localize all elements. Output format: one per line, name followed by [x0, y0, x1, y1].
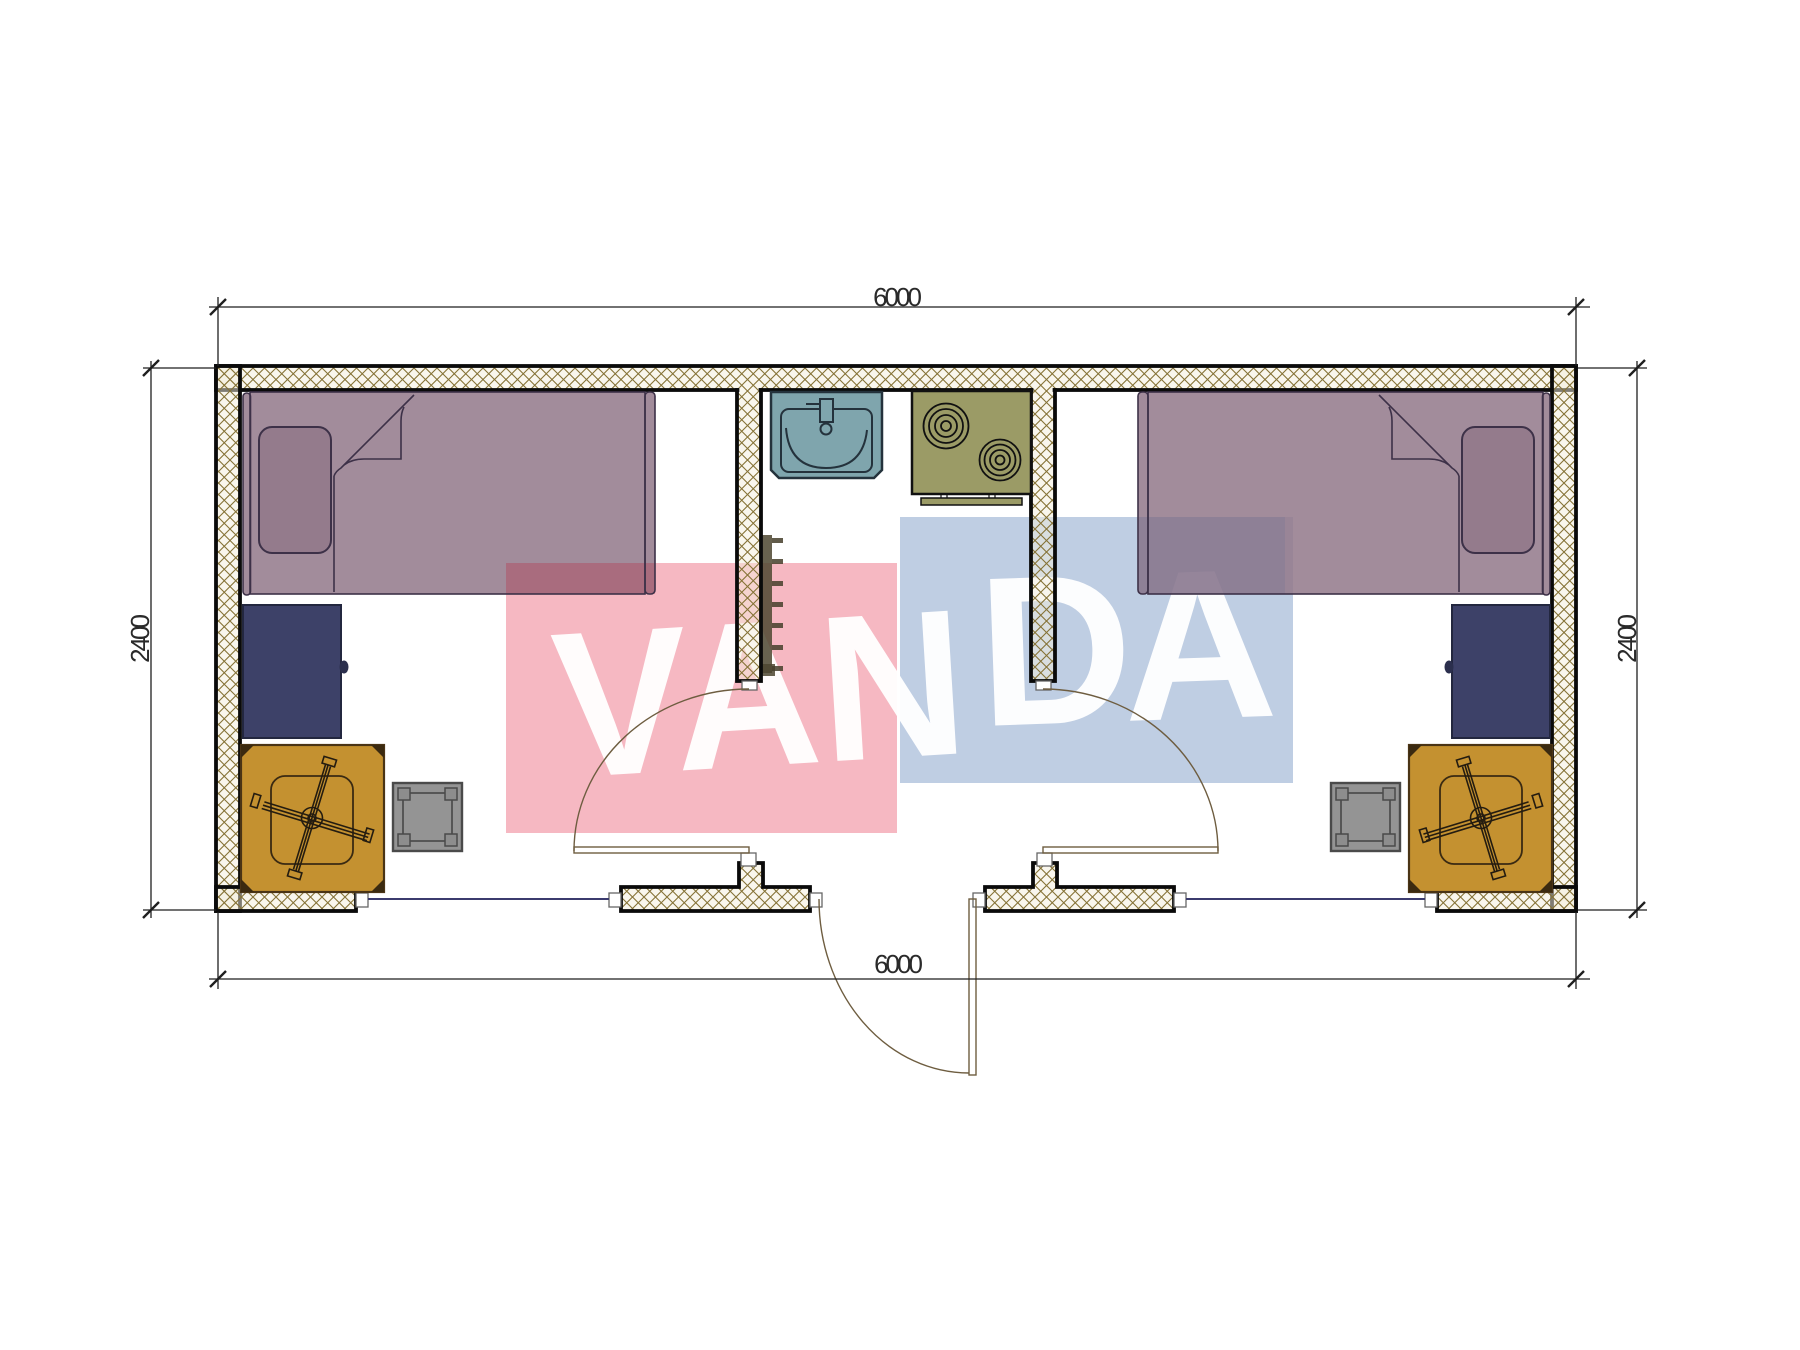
svg-text:2400: 2400	[125, 615, 155, 663]
svg-text:2400: 2400	[1612, 615, 1642, 663]
svg-text:6000: 6000	[873, 282, 921, 312]
svg-text:6000: 6000	[874, 949, 922, 979]
